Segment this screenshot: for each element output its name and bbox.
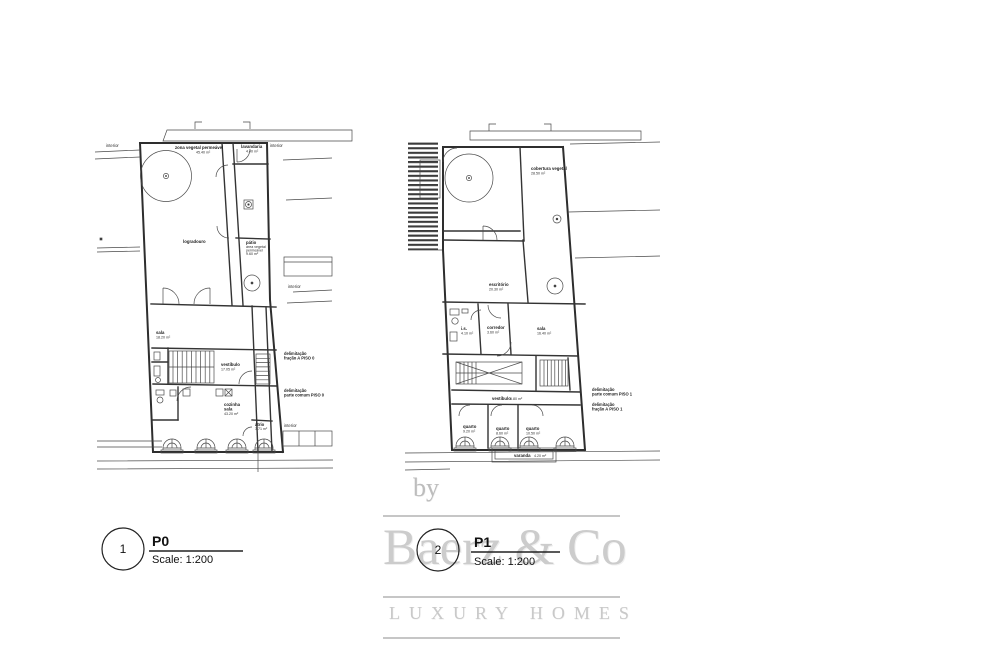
label-quarto-1-area: 9.20 m² [463,430,476,434]
drawing-scale: Scale: 1:200 [152,554,213,566]
label-vestibulo-p1: vestíbulo [492,396,511,401]
small-tree-icon [547,215,563,294]
drawing-number: 1 [120,542,127,556]
door-arcs-p0 [163,149,252,436]
hatched-roof [408,142,443,250]
label-sala-p1-area: 16.40 m² [537,332,552,336]
label-escritorio: escritório [489,282,509,287]
floor-plan-drawing: interior zona vegetal permeável 45.40 m²… [0,0,1000,662]
label-interior: interior [284,423,297,428]
drawing-sheet: by Baerz & Co LUXURY HOMES [0,0,1000,662]
outer-walls-p0 [140,143,283,452]
label-cozinha-area: 43.20 m² [224,412,239,416]
label-quarto-3-area: 10.50 m² [526,432,541,436]
title-block-p0: 1 P0 Scale: 1:200 [102,528,243,570]
label-zona-vegetal-area: 45.40 m² [196,151,211,155]
facade-windows-p1 [454,437,576,451]
fanlight-window-icon [226,439,248,453]
top-strip-p0 [163,130,352,141]
label-vestibulo-area: 17.05 m² [221,368,236,372]
drawing-number: 2 [435,543,442,557]
label-patio-area: 9.60 m² [246,252,259,256]
label-quarto-2: quarto [496,426,510,431]
label-is: i.s. [461,326,467,331]
label-quarto-2-area: 8.60 m² [496,432,509,436]
label-varanda-area: 4.20 m² [534,454,547,458]
patio-tree-icon [244,275,260,291]
label-sala: sala [156,330,165,335]
label-sala-area: 18.20 m² [156,336,171,340]
label-quarto-3: quarto [526,426,540,431]
label-interior: interior [270,143,283,148]
label-zona-vegetal: zona vegetal permeável [175,145,223,150]
top-strip-p1 [470,131,641,140]
fixtures-p1 [450,309,468,341]
label-delim-fracao-2: fração A PISO 0 [284,356,315,361]
label-atrio-area: 3.71 m² [255,427,268,431]
fanlight-window-icon [518,437,540,451]
inner-walls-p0 [151,143,276,452]
side-stairs-icon-p1 [540,360,568,386]
label-vestibulo: vestíbulo [221,362,240,367]
tree-icon [141,151,192,202]
fanlight-window-icon [195,439,217,453]
corner-marks-p1 [489,124,551,131]
label-interior: interior [106,143,119,148]
label-vestibulo-p1-area: 5.80 m² [510,397,523,401]
label-delim-fracao-p1-2: fração A PISO 1 [592,407,623,412]
drawing-code: P1 [474,534,491,550]
label-delim-comum-p1-2: parte comum PISO 1 [592,392,633,397]
label-corredor: corredor [487,325,505,330]
stairs-icon-p1 [456,362,522,384]
plan-p1: cobertura vegetal 28.50 m² escritório 20… [405,124,660,470]
label-is-area: 4.10 m² [461,332,474,336]
label-quarto-1: quarto [463,424,477,429]
label-cobertura-area: 28.50 m² [531,172,546,176]
inner-walls-p1 [443,147,585,448]
context-line-p1-top [570,142,660,144]
label-logradouro: logradouro [183,239,206,244]
drawing-scale: Scale: 1:200 [474,556,535,568]
corner-marks-p0 [195,122,250,129]
label-lavandaria-area: 4.40 m² [246,150,259,154]
label-varanda: varanda [514,453,531,458]
context-lines-p0 [95,150,333,469]
stairs-icon-p0 [169,351,214,383]
label-sala-p1: sala [537,326,546,331]
label-cobertura: cobertura vegetal [531,166,567,171]
fixtures-p0 [154,352,232,403]
label-escritorio-area: 20.30 m² [489,288,504,292]
fanlight-window-icon [161,439,183,453]
label-lavandaria: lavandaria [241,144,263,149]
label-interior: interior [288,284,301,289]
drawing-code: P0 [152,533,169,549]
title-block-p1: 2 P1 Scale: 1:200 [417,529,560,571]
tree-icon [445,154,493,202]
label-cozinha-2: sala [224,407,233,412]
washing-machine-icon [244,200,253,209]
fanlight-window-icon [454,437,476,451]
fanlight-window-icon [554,437,576,451]
plan-p0: interior zona vegetal permeável 45.40 m²… [95,122,352,472]
label-corredor-area: 3.60 m² [487,331,500,335]
label-delim-comum-2: parte comum PISO 0 [284,393,325,398]
